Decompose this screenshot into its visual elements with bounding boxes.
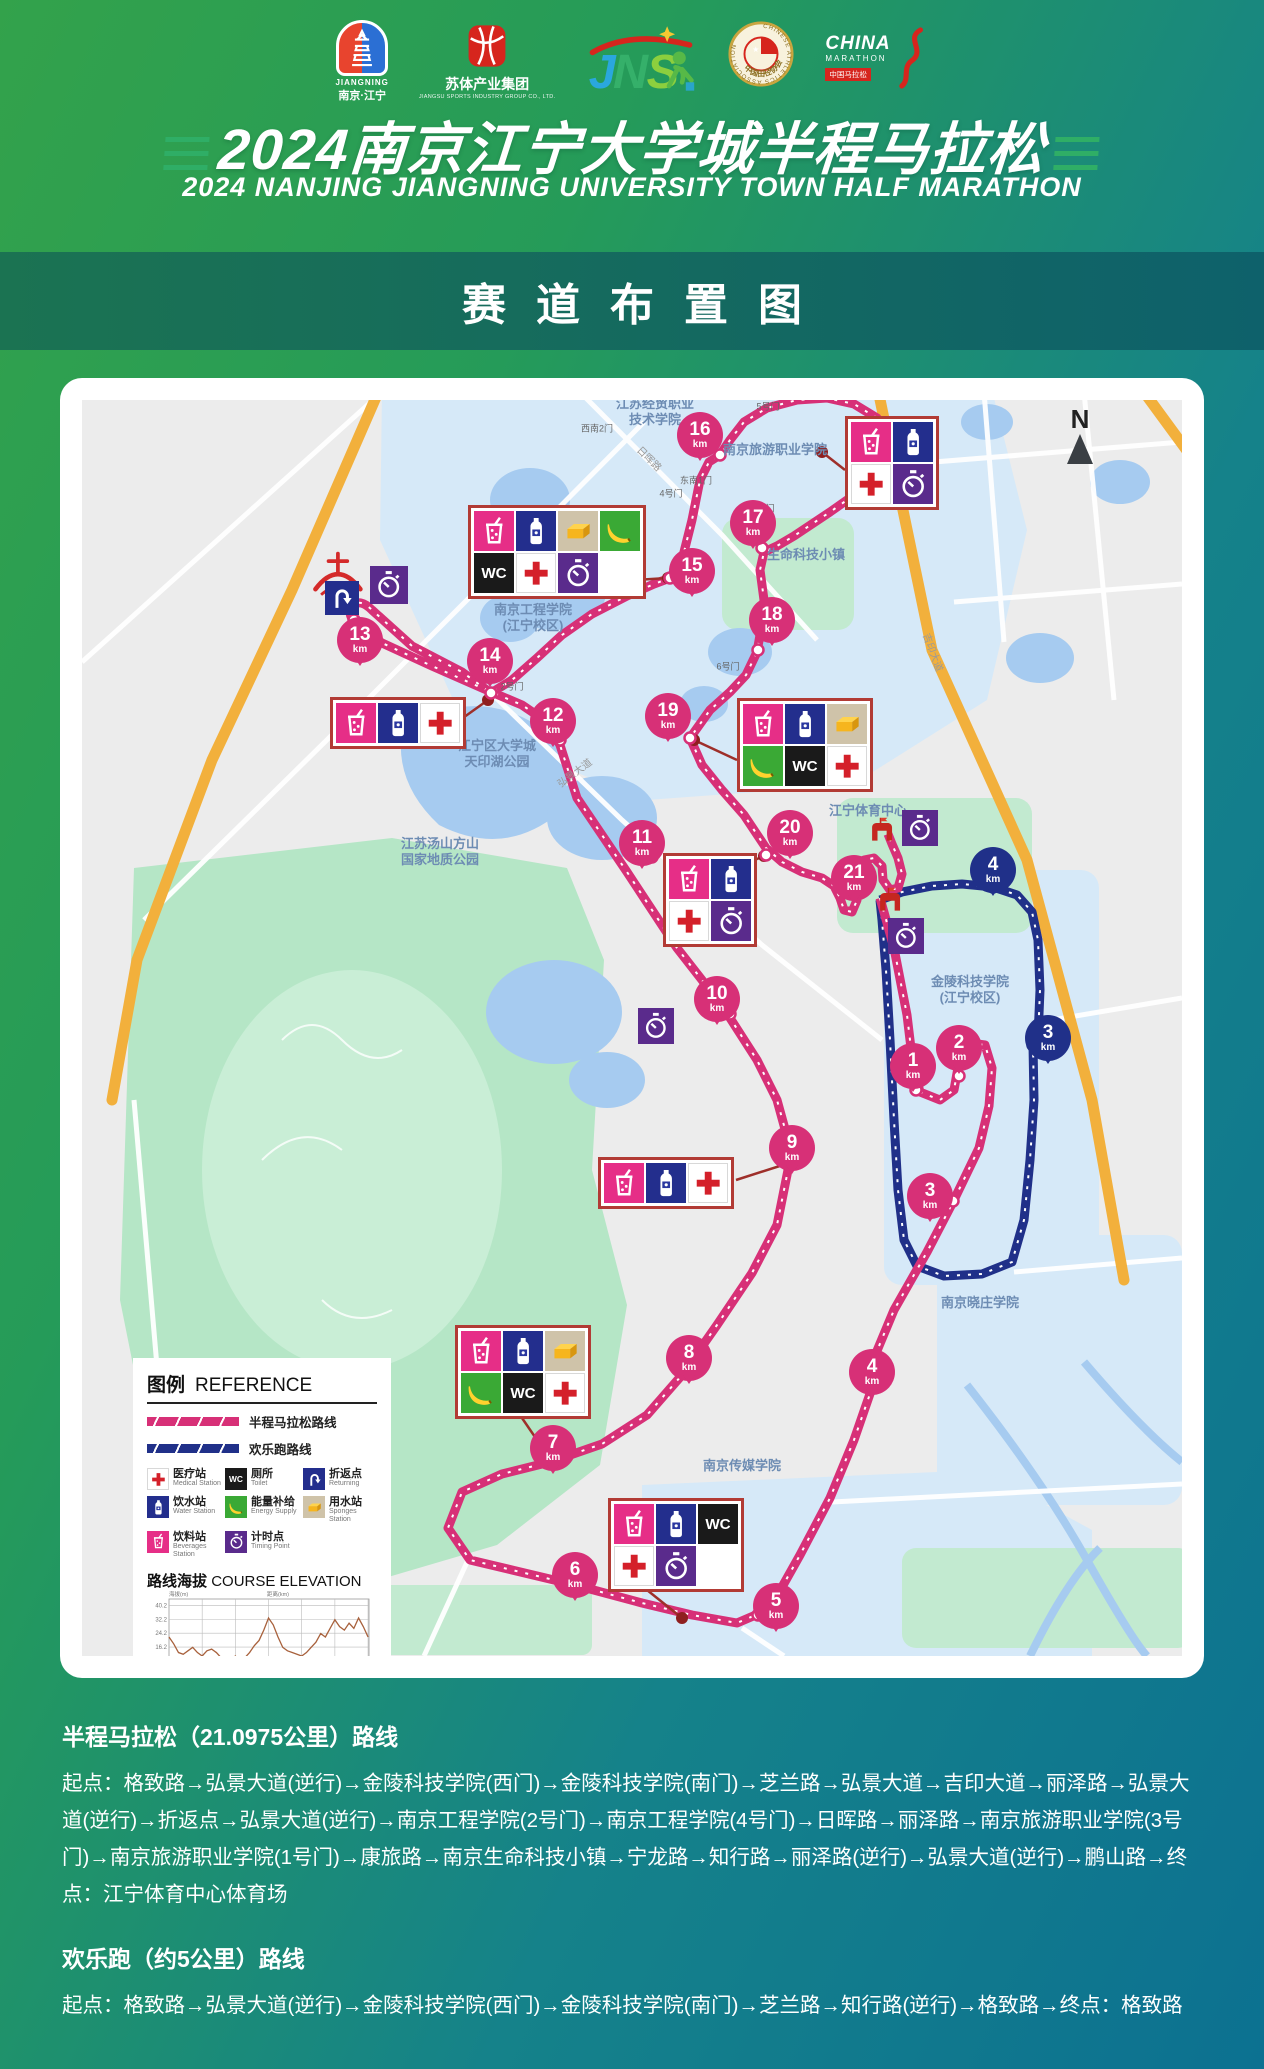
legend-item-medical: 医疗站Medical Station	[147, 1468, 221, 1490]
legend-box: 图例REFERENCE 半程马拉松路线欢乐跑路线 医疗站Medical Stat…	[133, 1358, 391, 1656]
north-arrow-icon	[1067, 434, 1093, 464]
beverage-icon	[851, 422, 891, 462]
km-marker-9: 9km	[769, 1125, 815, 1171]
medical-icon	[669, 901, 709, 941]
km-marker-unit: km	[923, 1201, 937, 1211]
map-place-label: 南京工程学院 (江宁校区)	[494, 602, 572, 635]
medical-icon	[827, 746, 867, 786]
energy-icon	[743, 746, 783, 786]
fun-run-route-text: 起点：格致路→弘景大道(逆行)→金陵科技学院(西门)→金陵科技学院(南门)→芝兰…	[62, 1988, 1202, 2025]
svg-text:16.2: 16.2	[155, 1645, 167, 1651]
km-marker-unit: km	[1041, 1043, 1055, 1053]
km-marker-value: 18	[761, 605, 782, 624]
legend-item-zh: 饮料站	[173, 1531, 221, 1543]
jns-event-logo: J N S	[585, 20, 697, 96]
elevation-title-en: COURSE ELEVATION	[211, 1573, 361, 1590]
km-marker-value: 3	[1043, 1023, 1054, 1042]
map-gate-label: 东南1门	[680, 474, 712, 487]
water-icon	[893, 422, 933, 462]
km-marker-value: 9	[787, 1133, 798, 1152]
jiangning-logo-zh: 南京·江宁	[338, 87, 386, 103]
km-marker-value: 4	[867, 1357, 878, 1376]
map-place-label: 金陵科技学院 (江宁校区)	[931, 974, 1009, 1007]
legend-item-zh: 厕所	[251, 1468, 273, 1480]
legend-item-en: Energy Supply	[251, 1508, 297, 1516]
chinese-athletics-association-logo: CHINESE ATHLETICS ASSOCIATION ★ 中国田径协会	[727, 20, 795, 88]
station-box-6	[598, 1157, 734, 1209]
legend-item-zh: 用水站	[329, 1496, 377, 1508]
km-marker-4: 4km	[970, 847, 1016, 893]
km-marker-unit: km	[635, 848, 649, 858]
km-marker-unit: km	[483, 666, 497, 676]
km-marker-3: 3km	[1025, 1015, 1071, 1061]
km-marker-value: 12	[542, 706, 563, 725]
km-marker-value: 14	[479, 646, 500, 665]
km-marker-value: 8	[684, 1343, 695, 1362]
map-place-label: 生命科技小镇	[767, 547, 845, 563]
jiangning-logo-en: JIANGNING	[335, 78, 388, 87]
elevation-title: 路线海拔 COURSE ELEVATION	[147, 1570, 377, 1591]
sponge-icon	[827, 704, 867, 744]
svg-text:★: ★	[753, 45, 760, 54]
course-map-heading: 赛道布置图	[432, 269, 832, 333]
legend-item-sponge: 用水站Sponges Station	[303, 1496, 377, 1525]
km-marker-value: 1	[908, 1051, 919, 1070]
north-indicator: N	[1067, 406, 1093, 464]
suti-sports-icon	[461, 20, 513, 72]
half-marathon-route-text: 起点：格致路→弘景大道(逆行)→金陵科技学院(西门)→金陵科技学院(南门)→芝兰…	[62, 1766, 1202, 1914]
legend-item-zh: 计时点	[251, 1531, 290, 1543]
svg-text:32.2: 32.2	[155, 1617, 167, 1623]
km-marker-unit: km	[765, 625, 779, 635]
km-marker-unit: km	[952, 1053, 966, 1063]
km-marker-value: 20	[779, 818, 800, 837]
km-marker-unit: km	[986, 875, 1000, 885]
water-icon	[378, 703, 418, 743]
km-marker-value: 21	[843, 863, 864, 882]
svg-text:S: S	[647, 45, 679, 96]
timing-icon	[893, 464, 933, 504]
km-marker-11: 11km	[619, 820, 665, 866]
km-marker-unit: km	[682, 1363, 696, 1373]
legend-item-en: Timing Point	[251, 1543, 290, 1551]
legend-item-en: Beverages Station	[173, 1543, 221, 1560]
energy-icon	[461, 1373, 501, 1413]
beverage-icon	[743, 704, 783, 744]
china-marathon-logo: CHINA MARATHON 中国马拉松	[825, 20, 928, 90]
km-marker-unit: km	[693, 440, 707, 450]
legend-item-en: Returning	[329, 1480, 362, 1488]
sponge-icon	[558, 511, 598, 551]
km-marker-5: 5km	[753, 1583, 799, 1629]
km-marker-value: 5	[771, 1591, 782, 1610]
legend-title-zh: 图例	[147, 1375, 185, 1396]
empty-icon	[600, 553, 640, 593]
toilet-icon: WC	[474, 553, 514, 593]
uturn-icon	[303, 1468, 325, 1490]
km-marker-1: 1km	[890, 1043, 936, 1089]
china-marathon-ribbon-icon	[895, 26, 929, 90]
elevation-chart: 8.216.224.232.240.23.57.010.514.017.521.…	[147, 1591, 375, 1656]
legend-item-en: Medical Station	[173, 1480, 221, 1488]
map-place-label: 南京晓庄学院	[941, 1295, 1019, 1311]
km-marker-10: 10km	[694, 976, 740, 1022]
route-line-swatch	[147, 1444, 239, 1453]
km-marker-20: 20km	[767, 810, 813, 856]
medical-icon	[420, 703, 460, 743]
km-marker-value: 2	[954, 1033, 965, 1052]
legend-item-uturn: 折返点Returning	[303, 1468, 377, 1490]
timing-icon	[656, 1546, 696, 1586]
km-marker-12: 12km	[530, 698, 576, 744]
station-box-3	[330, 697, 466, 749]
legend-item-water: 饮水站Water Station	[147, 1496, 221, 1525]
beverage-icon	[474, 511, 514, 551]
svg-text:40.2: 40.2	[155, 1603, 167, 1609]
medical-icon	[516, 553, 556, 593]
timing-icon	[558, 553, 598, 593]
map-place-label: 江宁区大学城 天印湖公园	[458, 738, 536, 771]
km-marker-19: 19km	[645, 693, 691, 739]
km-marker-unit: km	[546, 1453, 560, 1463]
km-marker-value: 6	[570, 1560, 581, 1579]
km-marker-value: 16	[689, 420, 710, 439]
station-box-1: WC	[468, 505, 646, 599]
caa-seal-icon: CHINESE ATHLETICS ASSOCIATION ★ 中国田径协会	[727, 20, 795, 88]
km-marker-unit: km	[865, 1377, 879, 1387]
km-marker-unit: km	[783, 838, 797, 848]
km-marker-7: 7km	[530, 1425, 576, 1471]
km-marker-unit: km	[710, 1004, 724, 1014]
legend-item-en: Water Station	[173, 1508, 215, 1516]
medical-icon	[147, 1468, 169, 1490]
jiangning-pagoda-icon	[336, 20, 388, 76]
km-marker-value: 7	[548, 1433, 559, 1452]
km-marker-unit: km	[746, 528, 760, 538]
course-map: N 16km17km15km18km13km14km12km19km20km11…	[82, 400, 1182, 1656]
station-box-8: WC	[608, 1498, 744, 1592]
half-marathon-heading: 半程马拉松（21.0975公里）路线	[62, 1718, 1202, 1752]
map-card: N 16km17km15km18km13km14km12km19km20km11…	[60, 378, 1204, 1678]
water-icon	[711, 859, 751, 899]
medical-icon	[545, 1373, 585, 1413]
suti-sports-zh: 苏体产业集团	[445, 74, 529, 94]
suti-sports-en: JIANGSU SPORTS INDUSTRY GROUP CO., LTD.	[419, 94, 556, 100]
legend-route-label: 半程马拉松路线	[249, 1412, 337, 1431]
china-marathon-line2: MARATHON	[825, 54, 890, 64]
legend-title-en: REFERENCE	[195, 1375, 312, 1396]
station-box-2	[845, 416, 939, 510]
km-marker-value: 19	[657, 701, 678, 720]
km-marker-unit: km	[661, 721, 675, 731]
water-icon	[656, 1504, 696, 1544]
legend-item-energy: 能量补给Energy Supply	[225, 1496, 299, 1525]
route-descriptions: 半程马拉松（21.0975公里）路线 起点：格致路→弘景大道(逆行)→金陵科技学…	[62, 1692, 1202, 2024]
uturn-icon	[325, 581, 359, 615]
energy-icon	[600, 511, 640, 551]
km-marker-value: 3	[925, 1181, 936, 1200]
km-marker-unit: km	[769, 1611, 783, 1621]
map-gate-label: 5号门	[756, 400, 779, 413]
km-marker-16: 16km	[677, 412, 723, 458]
poster-subtitle-en: 2024 NANJING JIANGNING UNIVERSITY TOWN H…	[0, 172, 1264, 203]
km-marker-unit: km	[785, 1153, 799, 1163]
map-gate-label: 2号门	[500, 680, 523, 693]
gate-icon	[874, 884, 906, 916]
beverage-icon	[147, 1531, 169, 1553]
km-marker-8: 8km	[666, 1335, 712, 1381]
toilet-icon: WC	[225, 1468, 247, 1490]
route-line-swatch	[147, 1417, 239, 1426]
km-marker-6: 6km	[552, 1552, 598, 1598]
map-place-label: 南京传媒学院	[703, 1458, 781, 1474]
km-marker-17: 17km	[730, 500, 776, 546]
svg-text:N: N	[613, 45, 649, 96]
km-marker-15: 15km	[669, 548, 715, 594]
station-box-7: WC	[455, 1325, 591, 1419]
legend-item-zh: 饮水站	[173, 1496, 215, 1508]
legend-item-en: Sponges Station	[329, 1508, 377, 1525]
medical-icon	[851, 464, 891, 504]
map-place-label: 江苏汤山方山 国家地质公园	[401, 836, 479, 869]
legend-route-label: 欢乐跑路线	[249, 1439, 312, 1458]
svg-text:24.2: 24.2	[155, 1631, 167, 1637]
section-band: 赛道布置图	[0, 252, 1264, 350]
marathon-course-poster: JIANGNING 南京·江宁 苏体产业集团 JIANGSU SPORTS IN…	[0, 0, 1264, 2069]
fun-run-heading: 欢乐跑（约5公里）路线	[62, 1940, 1202, 1974]
svg-text:海拔(m): 海拔(m)	[169, 1591, 188, 1598]
km-marker-unit: km	[546, 726, 560, 736]
toilet-icon: WC	[503, 1373, 543, 1413]
water-icon	[516, 511, 556, 551]
legend-item-zh: 能量补给	[251, 1496, 297, 1508]
timing-icon	[902, 810, 938, 846]
sponsor-logos-row: JIANGNING 南京·江宁 苏体产业集团 JIANGSU SPORTS IN…	[0, 20, 1264, 108]
china-marathon-line3: 中国马拉松	[825, 68, 871, 81]
km-marker-18: 18km	[749, 597, 795, 643]
medical-icon	[688, 1163, 728, 1203]
km-marker-unit: km	[353, 645, 367, 655]
map-place-label: 南京旅游职业学院	[723, 442, 827, 458]
legend-item-zh: 医疗站	[173, 1468, 221, 1480]
svg-text:距离(km): 距离(km)	[267, 1591, 289, 1598]
suti-sports-logo: 苏体产业集团 JIANGSU SPORTS INDUSTRY GROUP CO.…	[419, 20, 556, 100]
legend-route-sample: 欢乐跑路线	[147, 1439, 377, 1458]
medical-icon	[614, 1546, 654, 1586]
north-letter: N	[1067, 406, 1093, 432]
empty-icon	[698, 1546, 738, 1586]
elevation-title-zh: 路线海拔	[147, 1573, 207, 1590]
km-marker-value: 4	[988, 855, 999, 874]
legend-item-timing: 计时点Timing Point	[225, 1531, 299, 1560]
water-icon	[503, 1331, 543, 1371]
km-marker-unit: km	[906, 1071, 920, 1081]
beverage-icon	[604, 1163, 644, 1203]
timing-icon	[370, 566, 408, 604]
km-marker-13: 13km	[337, 617, 383, 663]
km-marker-value: 15	[681, 556, 702, 575]
toilet-icon: WC	[698, 1504, 738, 1544]
sponge-icon	[303, 1496, 325, 1518]
legend-title: 图例REFERENCE	[147, 1370, 377, 1404]
km-marker-4: 4km	[849, 1349, 895, 1395]
map-gate-label: 西南2门	[581, 422, 613, 435]
km-marker-3: 3km	[907, 1173, 953, 1219]
timing-icon	[711, 901, 751, 941]
beverage-icon	[461, 1331, 501, 1371]
legend-item-toilet: WC厕所Toilet	[225, 1468, 299, 1490]
water-icon	[147, 1496, 169, 1518]
km-marker-14: 14km	[467, 638, 513, 684]
timing-icon	[888, 918, 924, 954]
timing-icon	[225, 1531, 247, 1553]
water-icon	[646, 1163, 686, 1203]
legend-route-sample: 半程马拉松路线	[147, 1412, 377, 1431]
timing-icon	[638, 1008, 674, 1044]
map-gate-label: 6号门	[716, 660, 739, 673]
station-box-5	[663, 853, 757, 947]
map-gate-label: 4号门	[659, 487, 682, 500]
km-marker-2: 2km	[936, 1025, 982, 1071]
legend-item-zh: 折返点	[329, 1468, 362, 1480]
legend-item-beverage: 饮料站Beverages Station	[147, 1531, 221, 1560]
beverage-icon	[336, 703, 376, 743]
gate-icon	[866, 814, 898, 846]
toilet-icon: WC	[785, 746, 825, 786]
km-marker-unit: km	[568, 1580, 582, 1590]
station-box-4: WC	[737, 698, 873, 792]
energy-icon	[225, 1496, 247, 1518]
km-marker-value: 13	[349, 625, 370, 644]
jiangning-logo: JIANGNING 南京·江宁	[335, 20, 388, 103]
sponge-icon	[545, 1331, 585, 1371]
china-marathon-line1: CHINA	[825, 33, 890, 54]
km-marker-unit: km	[847, 883, 861, 893]
water-icon	[785, 704, 825, 744]
km-marker-value: 17	[742, 508, 763, 527]
beverage-icon	[614, 1504, 654, 1544]
km-marker-21: 21km	[831, 855, 877, 901]
jns-runner-icon: J N S	[585, 20, 697, 96]
km-marker-value: 11	[632, 828, 652, 847]
km-marker-value: 10	[706, 984, 727, 1003]
legend-item-en: Toilet	[251, 1480, 273, 1488]
km-marker-unit: km	[685, 576, 699, 586]
beverage-icon	[669, 859, 709, 899]
